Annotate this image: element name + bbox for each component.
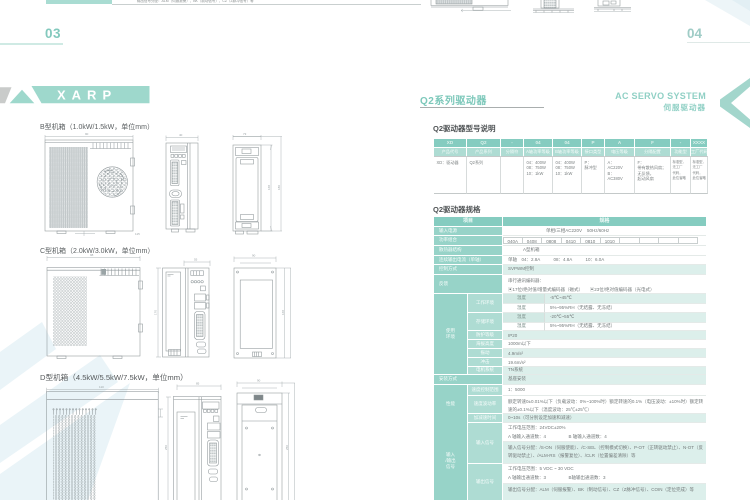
svg-text:73: 73 <box>243 132 247 136</box>
svg-text:168: 168 <box>281 310 285 315</box>
svg-text:40: 40 <box>179 133 183 137</box>
svg-text:98: 98 <box>90 253 94 257</box>
svg-text:85: 85 <box>196 382 200 386</box>
svg-text:180: 180 <box>277 185 281 190</box>
svg-text:110: 110 <box>99 385 104 389</box>
svg-text:90: 90 <box>85 132 89 136</box>
svg-text:55: 55 <box>194 258 198 262</box>
svg-text:250: 250 <box>164 445 168 450</box>
svg-text:168: 168 <box>267 185 271 190</box>
svg-text:250: 250 <box>285 445 289 450</box>
svg-text:115: 115 <box>135 232 140 236</box>
svg-text:90: 90 <box>252 254 256 258</box>
svg-text:170: 170 <box>154 310 158 315</box>
svg-text:90: 90 <box>257 379 261 383</box>
